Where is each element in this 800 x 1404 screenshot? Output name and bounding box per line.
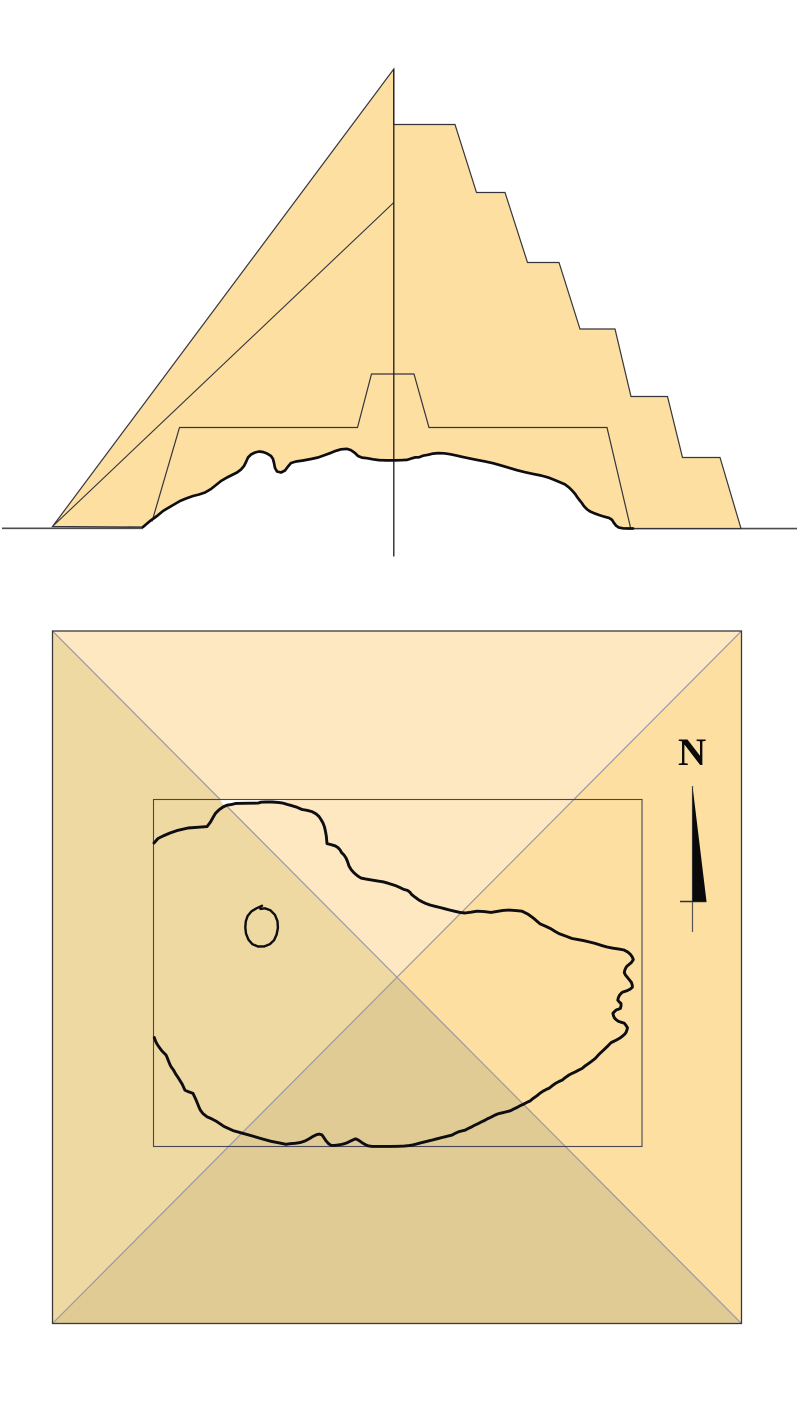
svg-text:N: N [678,731,706,774]
